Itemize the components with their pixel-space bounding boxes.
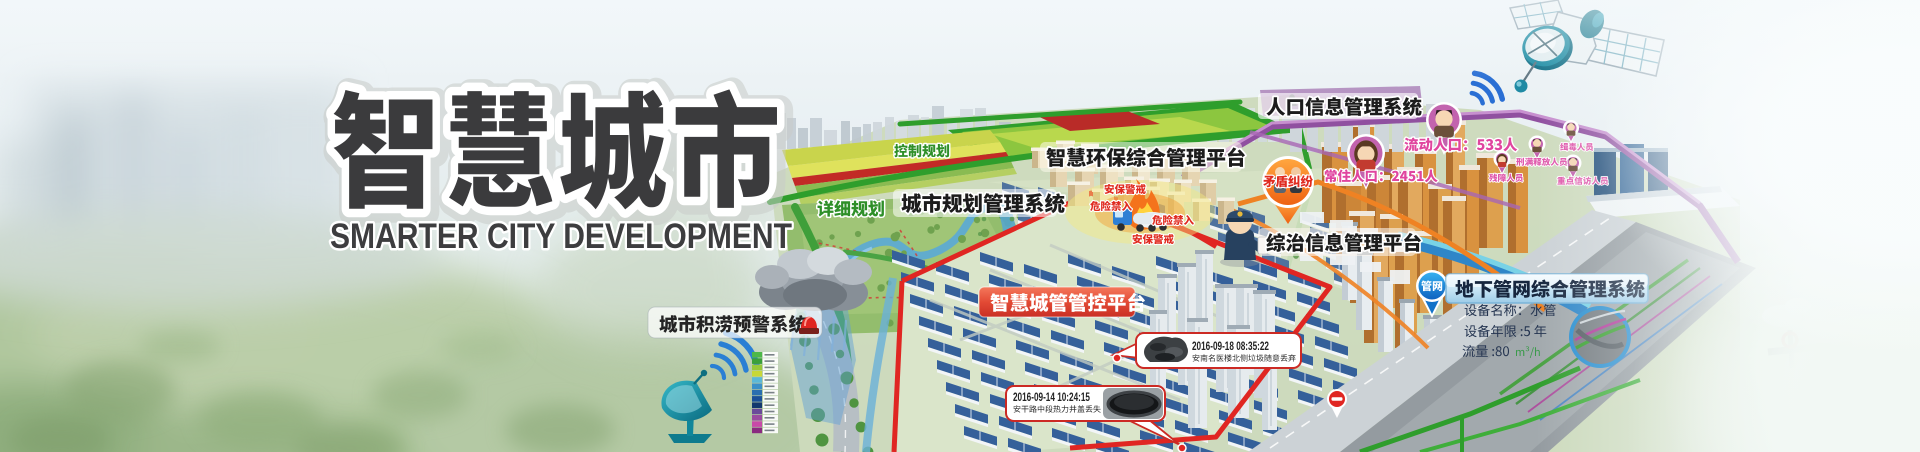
svg-text:2016-09-14 10:24:15: 2016-09-14 10:24:15 <box>1013 392 1090 404</box>
svg-text:2016-09-18 08:35:22: 2016-09-18 08:35:22 <box>1192 341 1269 353</box>
svg-text:SMARTER CITY DEVELOPMENT: SMARTER CITY DEVELOPMENT <box>330 217 792 256</box>
